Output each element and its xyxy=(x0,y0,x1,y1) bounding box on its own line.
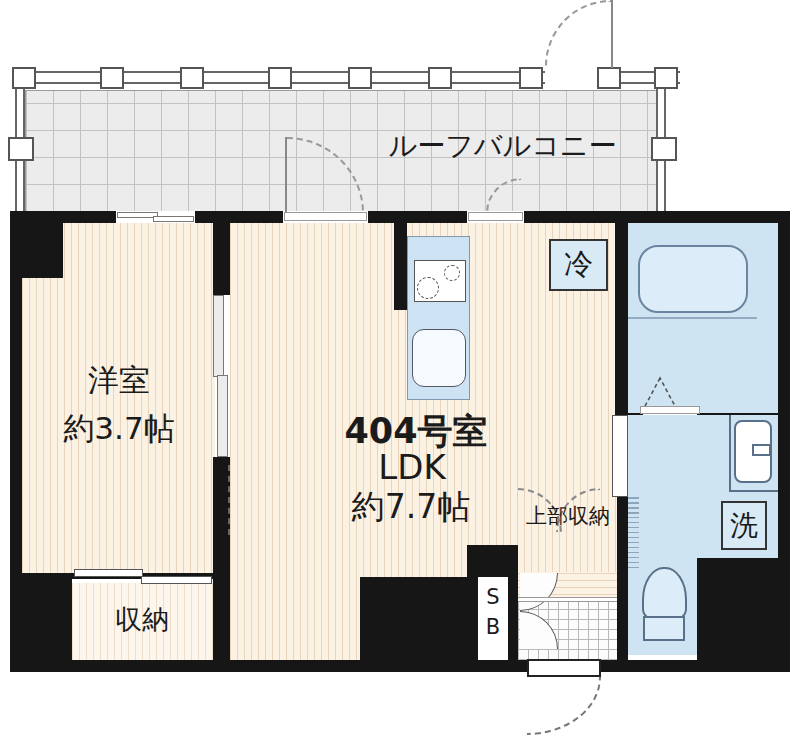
outer-wall-left xyxy=(10,211,22,672)
hall-washroom-wall xyxy=(617,497,628,660)
room-sliding-door xyxy=(217,375,228,457)
bathtub-icon xyxy=(638,245,748,313)
shaft-top-wall xyxy=(467,545,518,577)
toilet-icon xyxy=(642,567,687,621)
unit-number-label: 404号室 xyxy=(336,410,496,452)
bath-left-wall xyxy=(615,223,628,367)
railing-post xyxy=(519,67,543,89)
railing-post xyxy=(180,67,204,89)
burner-icon xyxy=(444,265,460,281)
shaft-side-wall xyxy=(508,577,518,660)
railing-post xyxy=(428,67,452,89)
opening-dashed-line xyxy=(228,465,230,535)
western-room-label: 洋室 xyxy=(49,360,189,402)
vanity-handle-icon xyxy=(752,444,771,456)
closet-sliding-door xyxy=(141,576,212,584)
railing-post xyxy=(597,67,621,89)
upper-storage-label: 上部収納 xyxy=(522,502,614,530)
vanity-partition-line xyxy=(729,490,778,492)
bath-counter-line xyxy=(628,317,757,319)
balcony-gate-door-arc xyxy=(545,0,611,66)
railing-post xyxy=(268,67,292,89)
sliding-window-icon xyxy=(117,212,158,218)
railing-post xyxy=(651,137,677,161)
ldk-label: LDK xyxy=(362,447,462,487)
balcony-gate-door-leaf xyxy=(611,0,613,68)
washer-space: 洗 xyxy=(721,501,767,550)
sliding-window-icon xyxy=(153,216,194,222)
ldk-size-label: 約7.7帖 xyxy=(336,486,486,528)
bath-pillar-lower xyxy=(778,289,790,403)
washer-label: 洗 xyxy=(730,507,758,545)
kitchen-stub-wall xyxy=(394,223,407,310)
vanity-partition-line xyxy=(729,415,731,492)
floor-plan: ルーフバルコニー 洋室 約3.7帖 収納 404号室 LDK 約7.7帖 xyxy=(0,0,800,747)
railing-post xyxy=(12,67,36,89)
wall-hatch-strip xyxy=(628,497,639,570)
closet-side-wall xyxy=(22,573,72,660)
fridge-space: 冷 xyxy=(549,239,608,291)
fridge-label: 冷 xyxy=(564,245,593,285)
entrance-door-arc xyxy=(527,677,601,735)
railing-post xyxy=(100,67,124,89)
washroom-sliding-door xyxy=(612,415,628,497)
bath-door-sill xyxy=(640,406,700,414)
southeast-wall-block xyxy=(697,558,790,672)
ldk-south-wall-block xyxy=(360,577,478,660)
closet-sliding-door xyxy=(74,569,143,577)
shaft-box-label-b: B xyxy=(478,613,508,641)
railing-post xyxy=(654,67,678,89)
closet-label: 収納 xyxy=(92,600,192,640)
burner-icon xyxy=(417,277,439,299)
room-sliding-door xyxy=(213,295,224,377)
sink-icon xyxy=(412,329,466,387)
outer-wall-bottom-left xyxy=(10,660,527,672)
folding-door-icon xyxy=(640,376,680,410)
roof-balcony-label: ルーフバルコニー xyxy=(385,128,620,164)
partition-wall xyxy=(213,223,230,295)
door-sill xyxy=(284,212,367,221)
door-sill xyxy=(468,212,523,221)
railing-post xyxy=(348,67,372,89)
shaft-box-label-s: S xyxy=(478,583,508,611)
entrance-step-line xyxy=(518,597,617,602)
western-room-size: 約3.7帖 xyxy=(44,408,194,450)
toilet-tank-icon xyxy=(643,616,685,641)
railing-post xyxy=(8,137,34,161)
entrance-door-leaf xyxy=(527,659,601,677)
pillar xyxy=(22,223,63,278)
